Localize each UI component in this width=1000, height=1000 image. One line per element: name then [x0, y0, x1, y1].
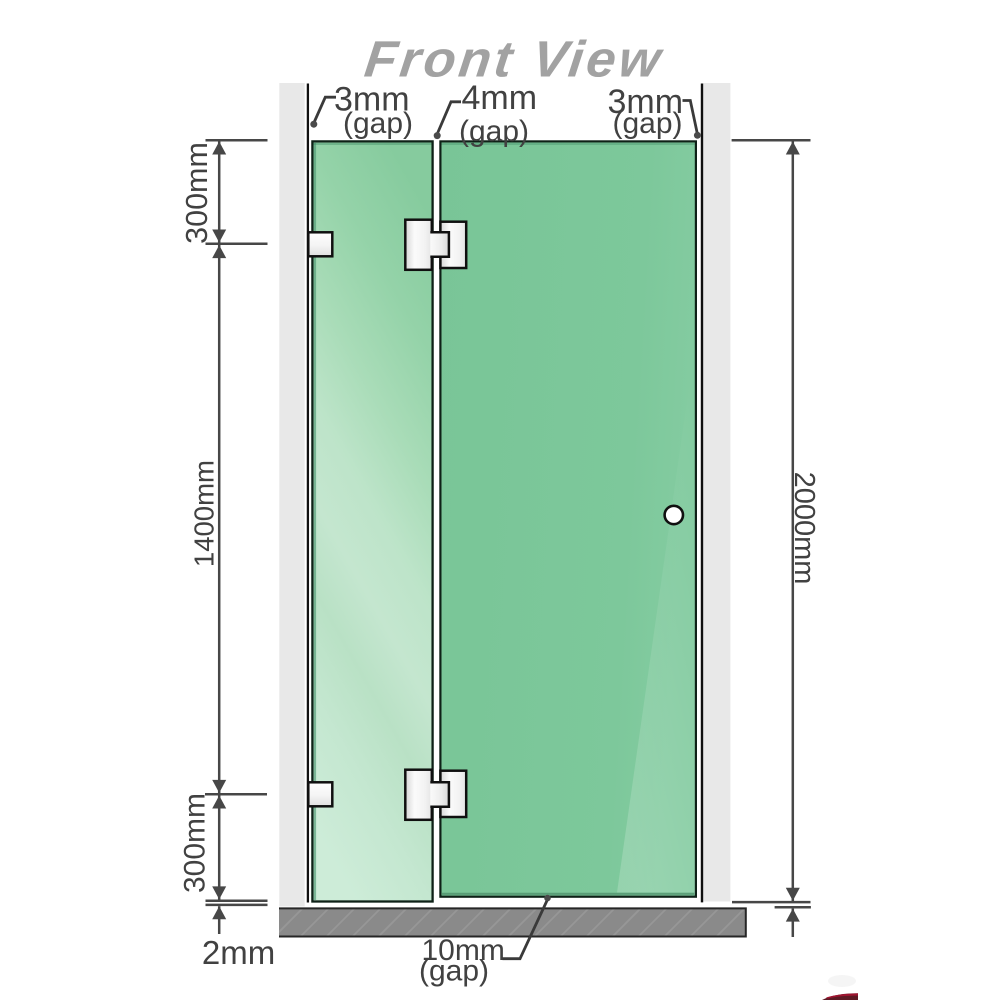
svg-text:300mm: 300mm [180, 142, 214, 244]
svg-text:(gap): (gap) [419, 955, 489, 988]
svg-text:(gap): (gap) [343, 107, 413, 140]
svg-text:2000mm: 2000mm [788, 472, 820, 585]
svg-text:(gap): (gap) [613, 107, 683, 140]
svg-text:4mm: 4mm [462, 79, 538, 117]
svg-text:(gap): (gap) [459, 115, 529, 148]
svg-text:2mm: 2mm [202, 934, 275, 971]
svg-text:300mm: 300mm [179, 793, 212, 893]
svg-text:1400mm: 1400mm [188, 460, 219, 567]
